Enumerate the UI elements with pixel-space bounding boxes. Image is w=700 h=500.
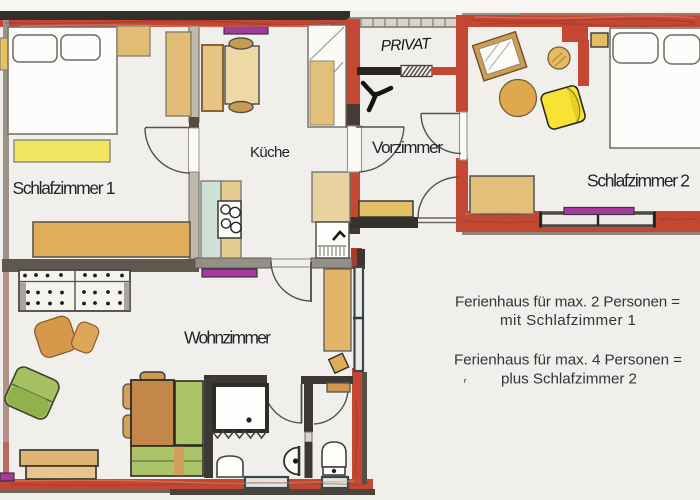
svg-text:Ferienhaus für max. 4 Personen: Ferienhaus für max. 4 Personen = — [454, 352, 682, 369]
svg-text:mit Schlafzimmer 1: mit Schlafzimmer 1 — [500, 312, 636, 329]
svg-text:Schlafzimmer 2: Schlafzimmer 2 — [587, 171, 690, 191]
svg-text:Wohnzimmer: Wohnzimmer — [184, 328, 271, 348]
svg-text:Schlafzimmer 1: Schlafzimmer 1 — [13, 178, 116, 198]
svg-text:PRIVAT: PRIVAT — [380, 35, 433, 55]
svg-text:Küche: Küche — [250, 144, 290, 161]
svg-text:Ferienhaus für max. 2 Personen: Ferienhaus für max. 2 Personen = — [455, 294, 680, 311]
svg-text:plus Schlafzimmer 2: plus Schlafzimmer 2 — [501, 371, 637, 388]
svg-text:Vorzimmer: Vorzimmer — [372, 138, 443, 157]
